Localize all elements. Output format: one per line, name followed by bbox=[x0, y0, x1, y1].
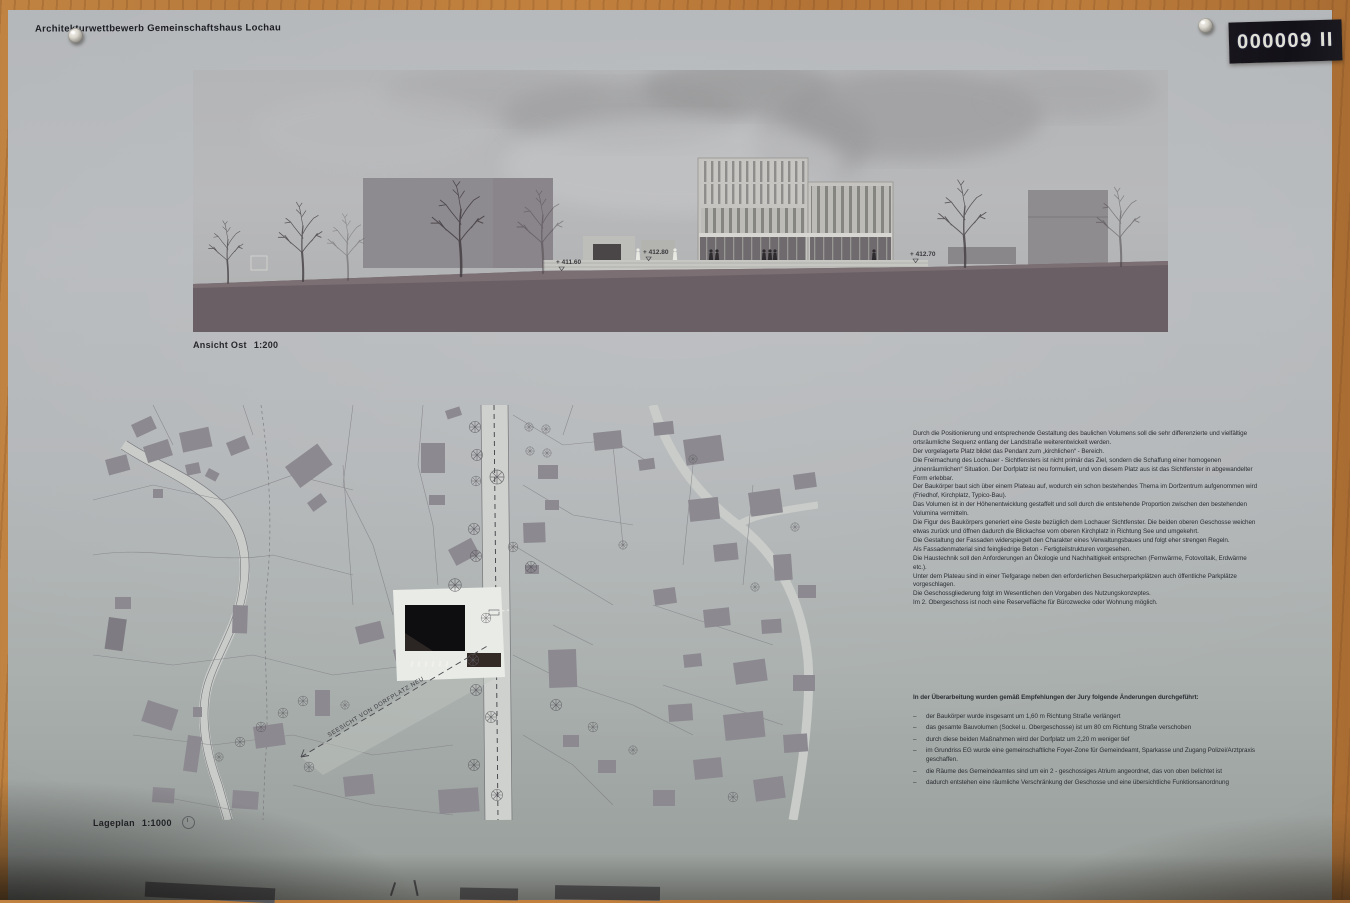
siteplan-drawing: SEESICHT VON DORFPLATZ NEU bbox=[93, 405, 818, 820]
revisions-heading: In der Überarbeitung wurden gemäß Empfeh… bbox=[913, 694, 1263, 703]
revision-item: im Grundriss EG wurde eine gemeinschaftl… bbox=[913, 747, 1263, 765]
north-symbol-icon bbox=[182, 816, 195, 829]
revision-item: die Räume des Gemeindeamtes sind um ein … bbox=[913, 768, 1263, 777]
svg-text:+ 412.70: + 412.70 bbox=[910, 251, 936, 258]
revision-item: der Baukörper wurde insgesamt um 1,60 m … bbox=[913, 713, 1263, 722]
elevation-drawing: + 411.60 + 412.80 + 412.70 bbox=[193, 70, 1168, 332]
description-paragraph: Die Geschossgliederung folgt im Wesentli… bbox=[913, 590, 1258, 599]
description-paragraph: Durch die Positionierung und entsprechen… bbox=[913, 430, 1258, 448]
description-paragraph: Unter dem Plateau sind in einer Tiefgara… bbox=[913, 573, 1258, 591]
pushpin-icon bbox=[1198, 18, 1213, 33]
description-paragraph: Im 2. Obergeschoss ist noch eine Reserve… bbox=[913, 599, 1258, 608]
description-paragraph: Das Volumen ist in der Höhenentwicklung … bbox=[913, 501, 1258, 519]
description-paragraph: Der Baukörper baut sich über einem Plate… bbox=[913, 483, 1258, 501]
partial-plan-shape bbox=[555, 885, 660, 901]
entry-number-plate: 000009 II bbox=[1228, 19, 1342, 63]
elevation-sky bbox=[193, 70, 1168, 285]
elevation-caption: Ansicht Ost1:200 bbox=[193, 340, 278, 350]
partial-plan-mark bbox=[390, 882, 396, 896]
jury-revisions: In der Überarbeitung wurden gemäß Empfeh… bbox=[913, 694, 1263, 791]
competition-poster: Architekturwettbewerb Gemeinschaftshaus … bbox=[8, 10, 1332, 900]
description-paragraph: Die Figur des Baukörpers generiert eine … bbox=[913, 519, 1258, 537]
svg-text:+ 411.60: + 411.60 bbox=[556, 259, 582, 266]
revision-item: das gesamte Bauvolumen (Sockel u. Oberge… bbox=[913, 724, 1263, 733]
siteplan-caption-title: Lageplan bbox=[93, 818, 135, 828]
pushpin-icon bbox=[68, 28, 83, 43]
elevation-caption-title: Ansicht Ost bbox=[193, 340, 247, 350]
description-paragraph: Die Freimachung des Lochauer - Sichtfens… bbox=[913, 457, 1258, 484]
revisions-list: der Baukörper wurde insgesamt um 1,60 m … bbox=[913, 713, 1263, 788]
entry-number: 000009 II bbox=[1237, 29, 1335, 55]
description-paragraph: Der vorgelagerte Platz bildet das Pendan… bbox=[913, 448, 1258, 457]
revision-item: durch diese beiden Maßnahmen wird der Do… bbox=[913, 736, 1263, 745]
partial-plan-shape bbox=[460, 887, 518, 900]
elevation-scale: 1:200 bbox=[254, 340, 279, 350]
siteplan-caption: Lageplan1:1000 bbox=[93, 816, 195, 829]
description-paragraph: Die Gestaltung der Fassaden widerspiegel… bbox=[913, 537, 1258, 546]
siteplan-scale: 1:1000 bbox=[142, 818, 172, 828]
description-paragraph: Als Fassadenmaterial sind feingliedrige … bbox=[913, 546, 1258, 555]
description-paragraph: Die Haustechnik soll den Anforderungen a… bbox=[913, 555, 1258, 573]
revision-item: dadurch entstehen eine räumliche Verschr… bbox=[913, 779, 1263, 788]
partial-plan-mark bbox=[413, 880, 418, 896]
svg-text:+ 412.80: + 412.80 bbox=[643, 249, 669, 256]
project-description: Durch die Positionierung und entsprechen… bbox=[913, 430, 1258, 608]
